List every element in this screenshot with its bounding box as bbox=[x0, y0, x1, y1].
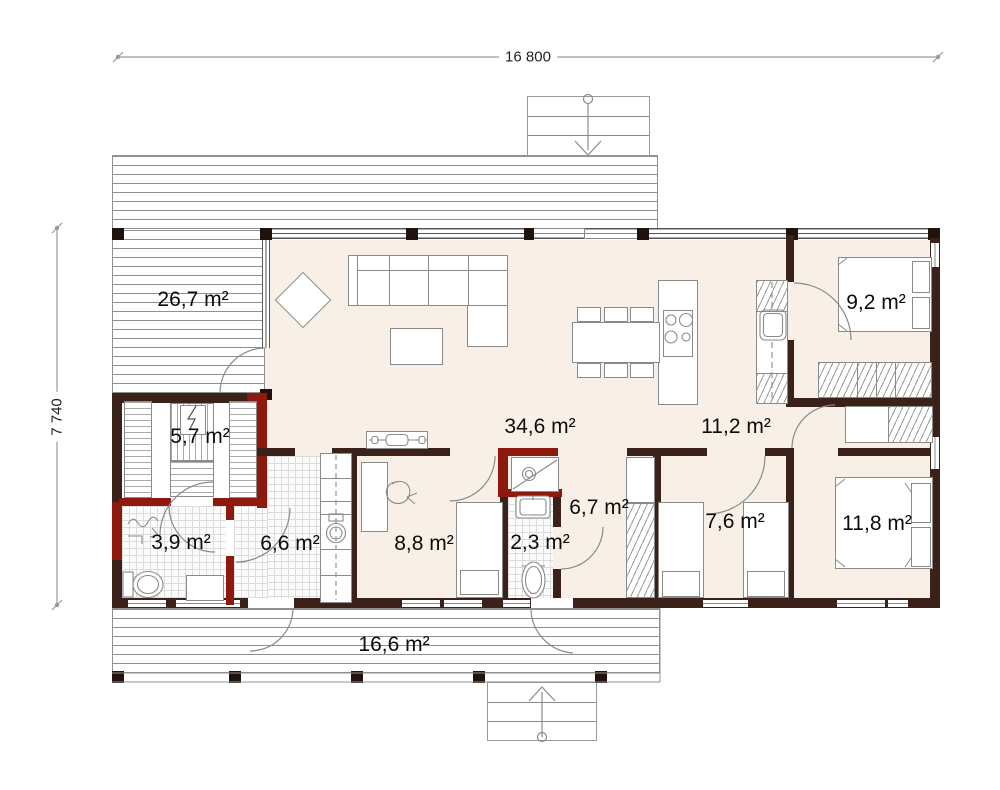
stair-start-circle bbox=[584, 95, 593, 104]
door-arc-bedroom-small bbox=[794, 283, 851, 340]
room-label-hallway: 11,2 m² bbox=[701, 415, 771, 439]
office-chair-icon bbox=[386, 481, 410, 503]
dimension-endpoint bbox=[116, 55, 120, 59]
room-label-bedroom-small: 9,2 m² bbox=[846, 291, 906, 315]
wc-toilet-bowl-inner bbox=[526, 567, 542, 594]
door-arc-terrace bbox=[220, 348, 265, 393]
dimension-endpoint bbox=[936, 55, 940, 59]
door-arc-sauna bbox=[160, 482, 213, 535]
dimension-endpoint bbox=[55, 603, 59, 607]
shower-head-squiggle-icon bbox=[128, 517, 158, 527]
toilet-tank bbox=[123, 572, 133, 597]
dimension-height-label: 7 740 bbox=[49, 392, 66, 442]
wc-sink-basin bbox=[520, 499, 546, 515]
barbell-cap bbox=[419, 437, 425, 444]
door-arc-hall-terrace bbox=[531, 608, 573, 653]
dimension-width-label: 16 800 bbox=[499, 49, 557, 66]
cooktop-burner-icon bbox=[665, 331, 677, 343]
kitchen-sink-basin bbox=[764, 314, 783, 337]
room-label-utility: 6,6 m² bbox=[260, 532, 320, 556]
floor-plan-canvas: 26,7 m² 9,2 m² 5,7 m² 34,6 m² 11,2 m² 6,… bbox=[0, 0, 1000, 790]
door-arc-office bbox=[450, 456, 495, 501]
room-label-wc: 2,3 m² bbox=[510, 531, 570, 555]
room-label-entry-hall: 6,7 m² bbox=[569, 496, 629, 520]
room-label-terrace-upper: 26,7 m² bbox=[157, 288, 228, 312]
room-label-living-kitchen: 34,6 m² bbox=[504, 415, 575, 439]
room-label-kids-room: 7,6 m² bbox=[705, 510, 765, 534]
door-arc-utility-terrace bbox=[250, 608, 293, 651]
barbell-sleeve bbox=[386, 435, 408, 446]
shower-drain-icon bbox=[526, 471, 533, 478]
toilet-bowl-inner bbox=[138, 576, 159, 594]
room-label-master-bedroom: 11,8 m² bbox=[842, 512, 912, 536]
shower-corner-mark bbox=[128, 536, 142, 544]
cooktop-burner-icon bbox=[666, 315, 676, 325]
dimension-endpoint bbox=[55, 226, 59, 230]
room-label-terrace-lower: 16,6 m² bbox=[358, 633, 429, 657]
cooktop-burner-icon bbox=[682, 333, 690, 341]
barbell-cap bbox=[372, 437, 378, 444]
door-arc-kids-room bbox=[707, 456, 765, 514]
door-arc-master bbox=[792, 405, 835, 448]
room-label-sauna: 5,7 m² bbox=[170, 425, 230, 449]
room-label-office: 8,8 m² bbox=[394, 532, 454, 556]
room-label-bathroom: 3,9 m² bbox=[151, 531, 211, 555]
office-chair-arrow bbox=[407, 493, 417, 504]
cooktop-burner-icon bbox=[680, 314, 693, 327]
plan-annotations-layer bbox=[0, 0, 1000, 790]
